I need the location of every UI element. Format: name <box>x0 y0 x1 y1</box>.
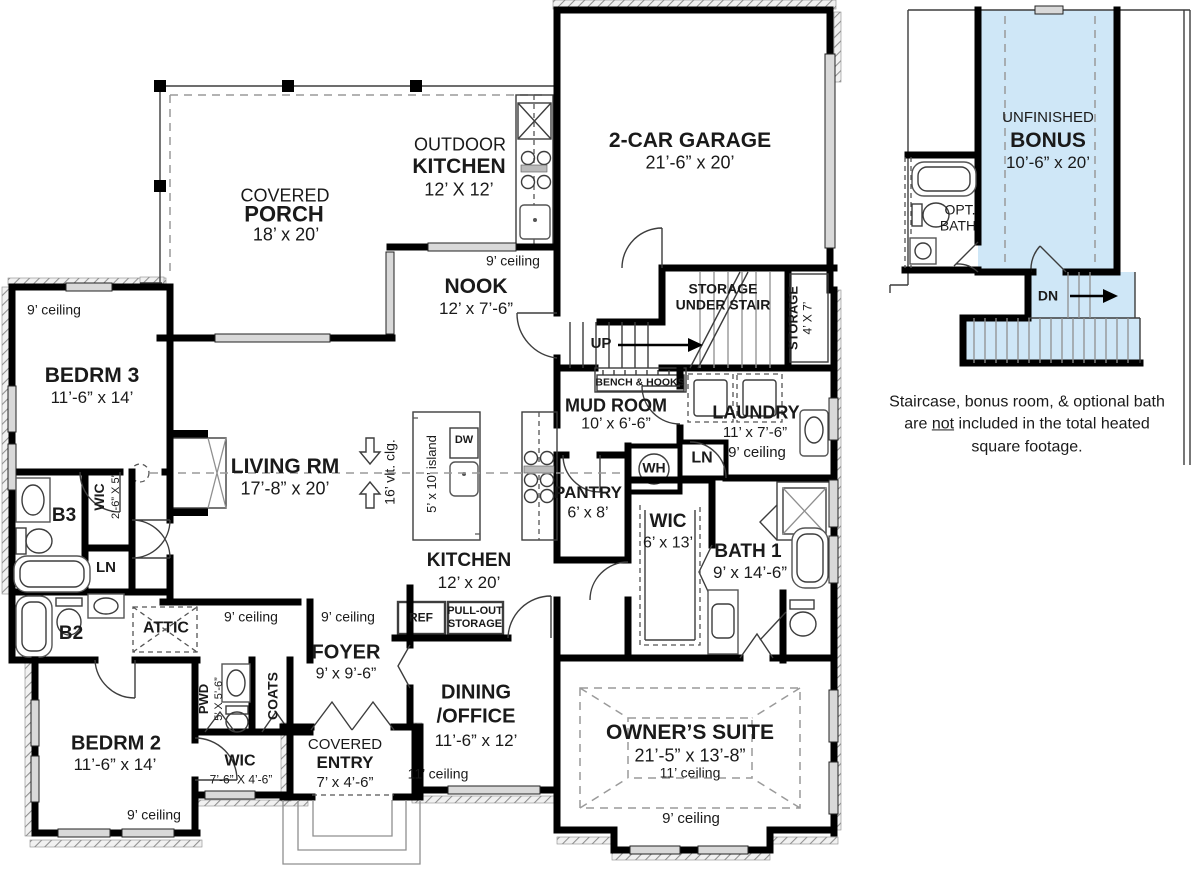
bench-hooks-label: BENCH & HOOKS <box>595 377 684 388</box>
room-label-wic-b3: WIC 2’-6” X 5’ <box>92 475 122 519</box>
room-label-mudroom: MUD ROOM <box>565 397 667 416</box>
wh-label: WH <box>642 461 665 476</box>
dims-bath1: 9’ x 14’-6” <box>713 564 787 582</box>
floor-plan-page: COVERED PORCH 18’ x 20’ OUTDOOR KITCHEN … <box>0 0 1200 869</box>
room-label-bedrm2: BEDRM 2 <box>71 734 161 755</box>
ceiling-label-owners-suite-11: 11’ ceiling <box>660 766 721 781</box>
dims-covered-entry: 7’ x 4’-6” <box>317 775 374 791</box>
dims-dining: 11’-6” x 12’ <box>435 732 518 750</box>
room-label-covered-entry-2: ENTRY <box>317 754 374 772</box>
pullout-label-1: PULL-OUT <box>447 606 503 618</box>
room-label-kitchen: KITCHEN <box>427 551 511 571</box>
room-label-outdoor-kitchen-2: KITCHEN <box>412 156 505 178</box>
room-label-outdoor-kitchen-1: OUTDOOR <box>414 136 506 155</box>
room-label-nook: NOOK <box>445 276 508 298</box>
room-label-covered-entry-1: COVERED <box>308 737 382 753</box>
room-label-covered-porch-2: PORCH <box>244 202 323 225</box>
vault-ceiling-label: 16’ vlt. clg. <box>383 439 398 505</box>
ref-label: REF <box>409 612 433 625</box>
room-label-pwd: PWD 5’ X 5’-6” <box>197 677 225 721</box>
room-label-foyer: FOYER <box>312 643 381 664</box>
room-label-dining-2: /OFFICE <box>437 707 516 728</box>
ln-mud-label: LN <box>691 451 712 468</box>
room-label-dining-1: DINING <box>441 683 511 704</box>
ceiling-label-foyer: 9’ ceiling <box>321 610 375 625</box>
room-label-bedrm3: BEDRM 3 <box>45 365 140 387</box>
dims-bedrm3: 11’-6” x 14’ <box>51 389 134 407</box>
dims-outdoor-kitchen: 12’ X 12’ <box>424 181 493 200</box>
room-label-bath1: BATH 1 <box>714 542 781 562</box>
dims-laundry: 11’ x 7’-6” <box>723 425 787 441</box>
room-label-storage-4x7: STORAGE 4’ X 7’ <box>786 286 813 350</box>
dims-nook: 12’ x 7’-6” <box>439 300 513 318</box>
dims-bedrm2: 11’-6” x 14’ <box>74 756 157 774</box>
room-label-pantry: PANTRY <box>554 484 622 502</box>
ceiling-label-dining: 11’ ceiling <box>408 767 469 782</box>
room-label-storage-under-stair-1: STORAGE <box>689 282 758 297</box>
room-label-wic-bedrm2: WIC <box>224 754 255 771</box>
dims-covered-porch: 18’ x 20’ <box>253 226 319 245</box>
ceiling-label-bedrm3: 9’ ceiling <box>27 303 81 318</box>
dims-wic-bedrm2: 7’-6” X 4’-6” <box>210 774 273 787</box>
dims-wic-owner: 6’ x 13’ <box>643 536 693 553</box>
room-label-opt-bath-1: OPT. <box>944 203 975 218</box>
room-label-ln-b3: LN <box>96 560 116 576</box>
ceiling-label-owners-suite-9: 9’ ceiling <box>662 811 720 827</box>
pullout-label-2: STORAGE <box>448 619 502 631</box>
ceiling-label-hall: 9’ ceiling <box>224 610 278 625</box>
dims-mudroom: 10’ x 6’-6” <box>581 417 651 434</box>
room-label-laundry: LAUNDRY <box>712 404 799 423</box>
bedroom3-wing <box>8 283 170 602</box>
ceiling-label-nook: 9’ ceiling <box>486 254 540 269</box>
room-label-coats: COATS <box>266 672 281 720</box>
room-label-wic-owner: WIC <box>650 512 687 532</box>
kitchen-fixtures <box>395 412 557 638</box>
dims-owners-suite: 21’-5” x 13’-8” <box>634 747 745 766</box>
dw-label: DW <box>455 435 473 447</box>
dims-pantry: 6’ x 8’ <box>567 506 608 523</box>
room-label-bonus-2: BONUS <box>1010 130 1086 152</box>
room-label-storage-under-stair-2: UNDER STAIR <box>676 298 771 313</box>
room-label-living: LIVING RM <box>231 456 340 478</box>
footnote: Staircase, bonus room, & optional bath a… <box>889 391 1165 458</box>
room-label-opt-bath-2: BATH <box>940 219 976 234</box>
room-label-bonus-1: UNFINISHED <box>1002 110 1094 126</box>
stairs-dn-label: DN <box>1038 289 1058 304</box>
dims-living: 17’-8” x 20’ <box>240 480 329 499</box>
room-label-garage: 2-CAR GARAGE <box>609 130 771 152</box>
living-room <box>131 243 620 516</box>
pantry-walls <box>557 446 628 560</box>
room-label-owners-suite: OWNER’S SUITE <box>606 722 774 744</box>
dims-bonus: 10’-6” x 20’ <box>1006 154 1090 172</box>
ceiling-label-laundry: 9’ ceiling <box>728 445 786 461</box>
dims-foyer: 9’ x 9’-6” <box>316 667 377 684</box>
stairs-up-label: UP <box>591 336 612 352</box>
dims-kitchen: 12’ x 20’ <box>438 574 501 592</box>
outdoor-kitchen-counter <box>516 95 553 247</box>
room-label-b2: B2 <box>59 624 83 644</box>
dims-garage: 21’-6” x 20’ <box>645 154 734 173</box>
island-label: 5’ x 10’ island <box>425 435 439 513</box>
room-label-b3: B3 <box>52 506 76 526</box>
attic-label: ATTIC <box>143 621 189 638</box>
foyer-entry <box>283 588 420 864</box>
ceiling-label-bedrm2: 9’ ceiling <box>127 808 181 823</box>
